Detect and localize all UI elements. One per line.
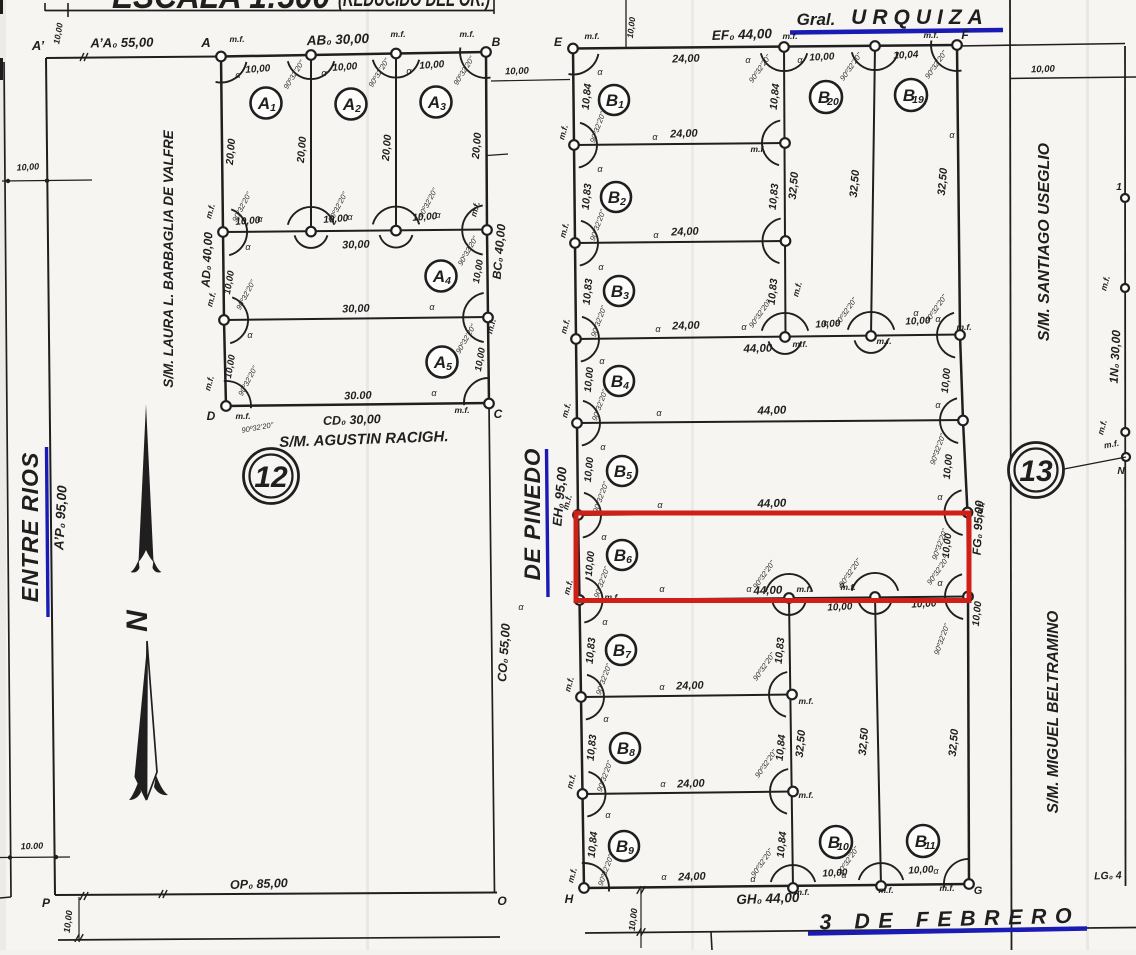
- svg-text:8: 8: [629, 747, 635, 759]
- svg-text:10: 10: [837, 841, 849, 853]
- svg-text:10,00: 10,00: [815, 318, 841, 330]
- svg-text:32,50: 32,50: [848, 169, 862, 198]
- svg-text:α: α: [605, 810, 611, 820]
- svg-text:m.f.: m.f.: [229, 34, 244, 44]
- svg-text:α: α: [235, 70, 241, 80]
- svg-text:10,00: 10,00: [419, 59, 445, 72]
- svg-text:10,00: 10,00: [827, 601, 853, 613]
- svg-text:α: α: [741, 322, 747, 332]
- svg-text:α: α: [656, 408, 662, 418]
- svg-text:m.f.: m.f.: [923, 30, 938, 40]
- svg-text:m.f.: m.f.: [878, 885, 893, 895]
- svg-text:6: 6: [626, 554, 632, 566]
- svg-text:1: 1: [1116, 182, 1122, 193]
- svg-text:30,00: 30,00: [342, 302, 371, 315]
- svg-text:CD₀ 30,00: CD₀ 30,00: [323, 412, 381, 428]
- svg-text:3: 3: [440, 101, 446, 113]
- svg-text:m.f.: m.f.: [956, 322, 971, 332]
- svg-text:ENTRE RIOS: ENTRE RIOS: [17, 452, 43, 603]
- svg-text:B: B: [617, 739, 629, 758]
- svg-text:20: 20: [826, 96, 839, 108]
- svg-text:4: 4: [622, 380, 629, 392]
- svg-text:3: 3: [623, 290, 629, 302]
- svg-text:2: 2: [619, 196, 626, 208]
- svg-text:H: H: [565, 892, 574, 906]
- svg-text:10.00: 10.00: [20, 841, 43, 852]
- svg-text:5: 5: [626, 470, 632, 482]
- svg-text:A’A₀ 55,00: A’A₀ 55,00: [89, 34, 154, 50]
- svg-text:AD₀ 40,00: AD₀ 40,00: [199, 231, 216, 288]
- svg-text:α: α: [797, 55, 803, 65]
- svg-text:α: α: [653, 230, 659, 240]
- svg-text:13: 13: [1019, 455, 1053, 488]
- svg-text:m.f.: m.f.: [454, 405, 469, 415]
- svg-text:URQUIZA: URQUIZA: [851, 6, 989, 29]
- svg-text:A: A: [427, 93, 440, 112]
- svg-text:α: α: [600, 442, 606, 452]
- svg-text:1: 1: [618, 99, 624, 111]
- svg-text:α: α: [601, 532, 607, 542]
- svg-text:α: α: [602, 617, 608, 627]
- svg-text:32,50: 32,50: [947, 728, 961, 757]
- svg-text:10,00: 10,00: [16, 161, 39, 172]
- svg-text:B: B: [492, 35, 501, 49]
- svg-text:44,00: 44,00: [742, 342, 773, 355]
- svg-text:ESCALA 1:500: ESCALA 1:500: [112, 0, 330, 16]
- svg-text:11: 11: [925, 840, 936, 852]
- svg-text:α: α: [321, 68, 327, 78]
- svg-text:B: B: [614, 546, 626, 565]
- svg-text:32,50: 32,50: [857, 727, 871, 756]
- svg-text:α: α: [598, 262, 604, 272]
- svg-text:m.f.: m.f.: [840, 582, 855, 592]
- svg-text:24,00: 24,00: [670, 225, 700, 238]
- svg-text:N: N: [121, 609, 154, 632]
- svg-text:AB₀ 30,00: AB₀ 30,00: [305, 31, 369, 48]
- svg-text:B: B: [608, 188, 620, 207]
- svg-text:m.f.: m.f.: [798, 790, 813, 800]
- svg-text:44,00: 44,00: [756, 497, 787, 510]
- svg-text:α: α: [247, 330, 253, 340]
- svg-text:α: α: [746, 584, 752, 594]
- svg-text:α: α: [661, 872, 667, 882]
- svg-text:Gral.: Gral.: [797, 10, 836, 29]
- svg-text:m.f.: m.f.: [792, 339, 807, 349]
- svg-text:32,50: 32,50: [794, 729, 808, 758]
- svg-text:GH₀ 44,00: GH₀ 44,00: [736, 890, 800, 907]
- svg-text:α: α: [599, 356, 605, 366]
- svg-text:10,00: 10,00: [905, 315, 931, 327]
- svg-text:α: α: [518, 602, 524, 612]
- svg-text:α: α: [937, 578, 943, 588]
- svg-text:2: 2: [354, 103, 361, 115]
- svg-text:F: F: [961, 28, 969, 42]
- svg-text:m.f.: m.f.: [390, 29, 405, 39]
- svg-text:10,00: 10,00: [822, 867, 848, 879]
- svg-text:24,00: 24,00: [676, 777, 706, 790]
- svg-text:O: O: [497, 894, 507, 908]
- svg-text:α: α: [657, 500, 663, 510]
- svg-text:m.f.: m.f.: [798, 696, 813, 706]
- svg-text:44,00: 44,00: [756, 404, 787, 417]
- svg-text:FG₀ 95,00: FG₀ 95,00: [970, 500, 987, 556]
- svg-text:12: 12: [254, 461, 288, 494]
- svg-text:D: D: [207, 409, 216, 423]
- svg-text:α: α: [933, 866, 939, 876]
- svg-text:m.f.: m.f.: [782, 31, 797, 41]
- svg-text:DE PINEDO: DE PINEDO: [520, 448, 545, 581]
- svg-text:S/M. LAURA L. BARBAGLIA DE VAL: S/M. LAURA L. BARBAGLIA DE VALFRE: [161, 129, 176, 387]
- svg-text:α: α: [745, 55, 751, 65]
- svg-text:α: α: [659, 584, 665, 594]
- svg-text:10,00: 10,00: [323, 213, 349, 226]
- svg-text:A: A: [342, 95, 355, 114]
- svg-text:α: α: [935, 314, 941, 324]
- svg-text:1: 1: [270, 102, 276, 114]
- svg-text:α: α: [603, 714, 609, 724]
- svg-text:α: α: [660, 779, 666, 789]
- svg-text:N: N: [1117, 466, 1125, 477]
- svg-text:B: B: [614, 462, 626, 481]
- svg-text:E: E: [554, 35, 563, 49]
- svg-text:10,00: 10,00: [235, 215, 261, 228]
- svg-text:19: 19: [912, 94, 924, 106]
- svg-text:24,00: 24,00: [671, 52, 701, 65]
- svg-text:24,00: 24,00: [675, 679, 705, 692]
- svg-text:44,00: 44,00: [752, 584, 783, 597]
- svg-text:α: α: [659, 682, 665, 692]
- svg-text:32,50: 32,50: [787, 171, 801, 200]
- svg-text:B: B: [611, 282, 623, 301]
- svg-text:B: B: [606, 91, 618, 110]
- svg-text:G: G: [974, 885, 983, 897]
- svg-text:32,50: 32,50: [936, 167, 950, 196]
- svg-text:α: α: [937, 492, 943, 502]
- svg-text:α: α: [431, 388, 437, 398]
- svg-text:10,00: 10,00: [908, 864, 934, 876]
- svg-text:(REDUCIDO DEL OR.): (REDUCIDO DEL OR.): [338, 0, 490, 11]
- svg-text:5: 5: [446, 361, 452, 373]
- svg-text:30,00: 30,00: [342, 238, 371, 251]
- svg-text:LG₀ 4: LG₀ 4: [1094, 870, 1122, 883]
- svg-text:10,00: 10,00: [245, 63, 271, 76]
- svg-text:α: α: [655, 324, 661, 334]
- svg-text:20,00: 20,00: [295, 136, 309, 164]
- svg-text:m.f.: m.f.: [235, 411, 250, 421]
- svg-text:α: α: [406, 66, 412, 76]
- svg-text:m.f.: m.f.: [876, 336, 891, 346]
- svg-text:B: B: [616, 837, 628, 856]
- svg-text:A: A: [257, 94, 270, 113]
- svg-text:10,00: 10,00: [1031, 64, 1056, 76]
- svg-text:C: C: [494, 407, 503, 421]
- svg-text:α: α: [750, 874, 756, 884]
- svg-text:α: α: [245, 242, 251, 252]
- svg-text:A: A: [200, 35, 210, 50]
- svg-text:α: α: [949, 130, 955, 140]
- svg-text:A’: A’: [31, 38, 45, 53]
- svg-text:m.f.: m.f.: [796, 584, 811, 594]
- svg-text:EF₀ 44,00: EF₀ 44,00: [712, 26, 773, 43]
- svg-text:A: A: [432, 267, 445, 286]
- svg-text:10,00: 10,00: [332, 61, 358, 74]
- svg-text:OP₀ 85,00: OP₀ 85,00: [230, 876, 288, 892]
- svg-text:S/M. MIGUEL BELTRAMINO: S/M. MIGUEL BELTRAMINO: [1045, 611, 1062, 814]
- svg-text:20,00: 20,00: [470, 132, 484, 160]
- svg-text:m.f.: m.f.: [459, 29, 474, 39]
- svg-text:P: P: [42, 896, 51, 910]
- svg-text:20,00: 20,00: [224, 138, 238, 166]
- svg-text:30.00: 30.00: [344, 389, 373, 402]
- svg-text:1N₀ 30,00: 1N₀ 30,00: [1107, 329, 1124, 383]
- svg-text:4: 4: [444, 275, 451, 287]
- svg-text:9: 9: [628, 845, 634, 857]
- svg-text:24,00: 24,00: [677, 870, 707, 883]
- svg-text:α: α: [597, 164, 603, 174]
- svg-text:10,00: 10,00: [809, 51, 835, 63]
- svg-text:24,00: 24,00: [669, 127, 699, 140]
- svg-text:B: B: [613, 641, 625, 660]
- svg-text:α: α: [597, 67, 603, 77]
- svg-text:B: B: [611, 372, 623, 391]
- svg-text:A: A: [433, 353, 446, 372]
- svg-text:24,00: 24,00: [671, 319, 701, 332]
- svg-text:20,00: 20,00: [380, 134, 394, 162]
- svg-text:α: α: [935, 400, 941, 410]
- svg-text:α: α: [429, 302, 435, 312]
- svg-text:m.f.: m.f.: [939, 883, 954, 893]
- svg-text:S/M. SANTIAGO USEGLIO: S/M. SANTIAGO USEGLIO: [1036, 142, 1053, 341]
- svg-text:m.f.: m.f.: [750, 144, 765, 154]
- svg-text:10,00: 10,00: [412, 211, 438, 224]
- svg-text:α: α: [652, 132, 658, 142]
- svg-text:10,04: 10,04: [893, 49, 919, 61]
- svg-text:m.f.: m.f.: [584, 31, 599, 41]
- svg-text:10,00: 10,00: [505, 66, 530, 78]
